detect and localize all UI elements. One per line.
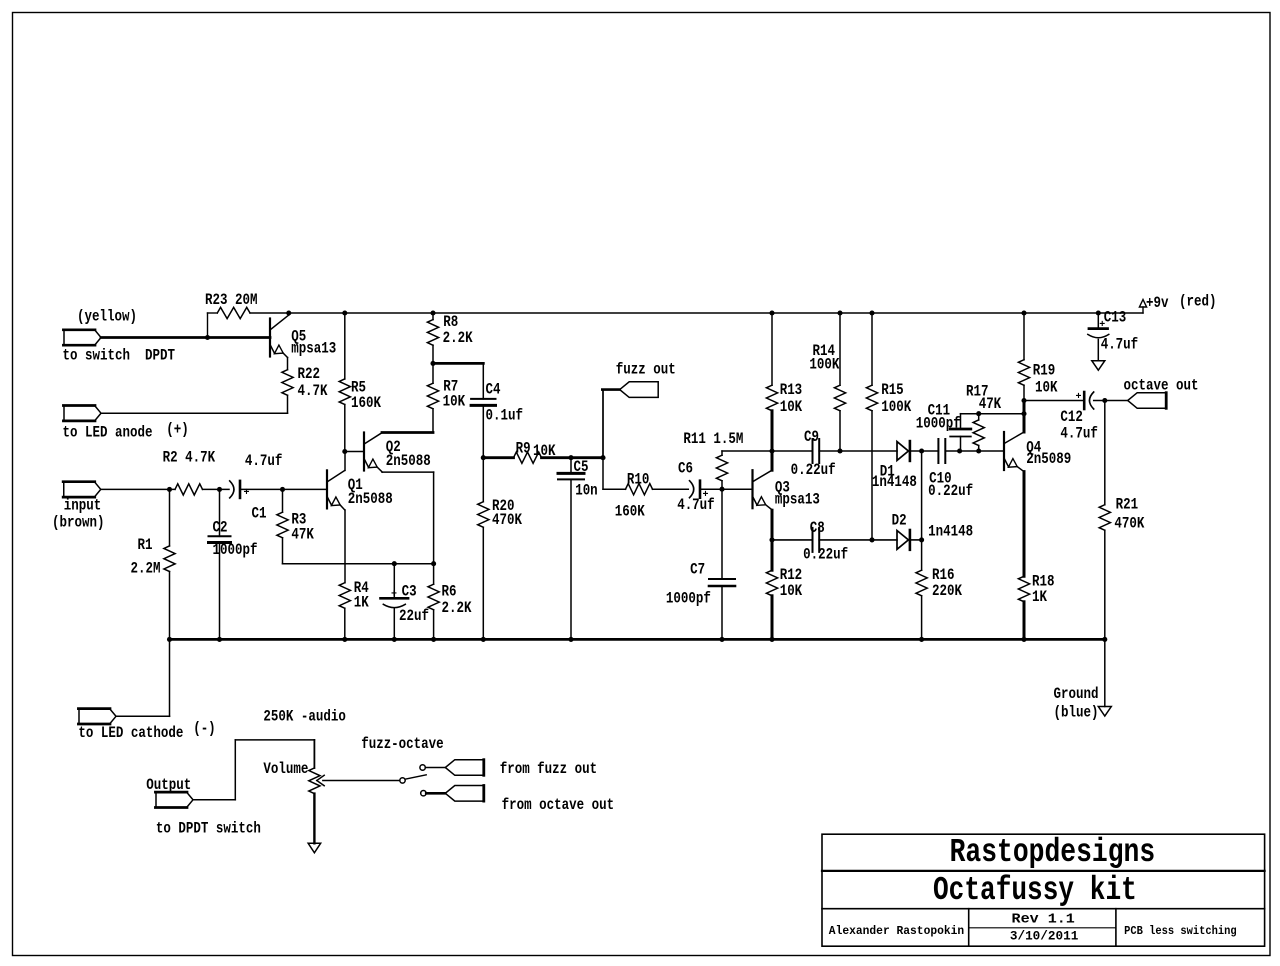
svg-text:1n4148: 1n4148 (872, 473, 917, 491)
svg-text:+: + (391, 589, 397, 600)
svg-text:R2 4.7K: R2 4.7K (163, 448, 216, 466)
svg-text:to DPDT switch: to DPDT switch (156, 820, 261, 838)
svg-text:C4: C4 (486, 380, 501, 398)
svg-text:Output: Output (146, 776, 191, 794)
svg-text:mpsa13: mpsa13 (775, 491, 820, 509)
svg-text:Octafussy kit: Octafussy kit (933, 872, 1137, 909)
svg-text:10K: 10K (1035, 379, 1058, 397)
svg-text:4.7uf: 4.7uf (677, 496, 715, 514)
svg-text:2n5088: 2n5088 (348, 490, 393, 508)
svg-text:Rev 1.1: Rev 1.1 (1012, 912, 1075, 928)
svg-text:1K: 1K (354, 594, 370, 612)
svg-text:4.7K: 4.7K (298, 382, 329, 400)
svg-text:2n5089: 2n5089 (1026, 450, 1071, 468)
svg-text:(red): (red) (1179, 293, 1217, 311)
svg-text:3/10/2011: 3/10/2011 (1010, 928, 1079, 943)
svg-text:Volume: Volume (263, 760, 308, 778)
svg-text:to LED anode: to LED anode (63, 423, 153, 441)
svg-text:from fuzz out: from fuzz out (500, 760, 598, 778)
svg-text:1000pf: 1000pf (666, 589, 711, 607)
svg-text:250K -audio: 250K -audio (263, 708, 346, 726)
svg-text:(yellow): (yellow) (77, 308, 137, 326)
svg-text:C5: C5 (574, 458, 589, 476)
svg-text:4.7uf: 4.7uf (1101, 335, 1139, 353)
svg-text:10K: 10K (443, 392, 466, 410)
svg-text:R10: R10 (627, 470, 650, 488)
svg-text:C3: C3 (402, 583, 417, 601)
svg-text:0.22uf: 0.22uf (791, 461, 836, 479)
svg-text:from octave out: from octave out (502, 796, 614, 814)
svg-text:+9v: +9v (1146, 294, 1169, 312)
svg-text:(-): (-) (193, 720, 216, 738)
svg-text:C8: C8 (810, 519, 825, 537)
svg-text:2n5088: 2n5088 (386, 452, 431, 470)
svg-text:(+): (+) (166, 421, 189, 439)
svg-text:10K: 10K (533, 442, 556, 460)
svg-text:1n4148: 1n4148 (928, 523, 973, 541)
svg-text:C13: C13 (1104, 308, 1127, 326)
svg-text:+: + (244, 488, 250, 499)
svg-text:(brown): (brown) (52, 513, 105, 531)
svg-text:47K: 47K (291, 525, 314, 543)
svg-text:10K: 10K (780, 398, 803, 416)
svg-text:input: input (64, 497, 102, 515)
svg-text:2.2M: 2.2M (131, 560, 161, 578)
svg-text:R6: R6 (442, 583, 457, 601)
svg-text:R23 20M: R23 20M (205, 291, 258, 309)
svg-text:C6: C6 (678, 460, 693, 478)
svg-text:2.2K: 2.2K (442, 599, 473, 617)
svg-text:C12: C12 (1060, 408, 1083, 426)
svg-text:R19: R19 (1033, 361, 1056, 379)
svg-text:4.7uf: 4.7uf (245, 452, 283, 470)
svg-text:octave out: octave out (1124, 377, 1199, 395)
svg-text:to LED cathode: to LED cathode (78, 724, 183, 742)
svg-text:R11 1.5M: R11 1.5M (683, 430, 743, 448)
svg-text:PCB less switching: PCB less switching (1124, 925, 1237, 938)
svg-text:100K: 100K (809, 355, 840, 373)
svg-text:47K: 47K (979, 395, 1002, 413)
svg-text:220K: 220K (932, 582, 963, 600)
svg-text:D2: D2 (892, 512, 907, 530)
svg-text:R22: R22 (298, 365, 321, 383)
svg-text:C9: C9 (804, 428, 819, 446)
svg-text:(blue): (blue) (1054, 703, 1099, 721)
svg-text:100K: 100K (881, 398, 912, 416)
svg-text:10K: 10K (780, 582, 803, 600)
svg-text:160K: 160K (615, 503, 646, 521)
svg-text:C1: C1 (252, 505, 267, 523)
svg-text:+: + (1076, 392, 1082, 403)
svg-text:DPDT: DPDT (145, 347, 175, 365)
svg-text:to switch: to switch (63, 347, 131, 365)
svg-text:470K: 470K (1114, 515, 1145, 533)
svg-text:1K: 1K (1032, 588, 1048, 606)
svg-text:1000pf: 1000pf (916, 415, 961, 433)
svg-text:R21: R21 (1116, 496, 1139, 514)
svg-text:22uf: 22uf (399, 607, 429, 625)
svg-text:R9: R9 (516, 439, 531, 457)
svg-text:mpsa13: mpsa13 (291, 340, 336, 358)
svg-text:Alexander Rastopokin: Alexander Rastopokin (829, 924, 964, 938)
svg-text:Ground: Ground (1054, 685, 1099, 703)
svg-text:470K: 470K (492, 511, 523, 529)
svg-text:Rastopdesigns: Rastopdesigns (950, 834, 1156, 871)
svg-text:R1: R1 (138, 536, 153, 554)
svg-text:fuzz-octave: fuzz-octave (361, 735, 444, 753)
svg-text:10n: 10n (575, 482, 598, 500)
svg-text:R15: R15 (881, 381, 904, 399)
svg-text:160K: 160K (351, 394, 382, 412)
svg-text:2.2K: 2.2K (443, 329, 474, 347)
svg-text:R13: R13 (780, 381, 803, 399)
svg-text:4.7uf: 4.7uf (1060, 424, 1098, 442)
svg-text:0.1uf: 0.1uf (486, 407, 524, 425)
svg-text:C2: C2 (213, 519, 228, 537)
svg-text:C7: C7 (690, 561, 705, 579)
svg-text:1000pf: 1000pf (213, 541, 258, 559)
svg-text:0.22uf: 0.22uf (928, 482, 973, 500)
svg-text:fuzz out: fuzz out (616, 360, 676, 378)
svg-text:0.22uf: 0.22uf (803, 546, 848, 564)
